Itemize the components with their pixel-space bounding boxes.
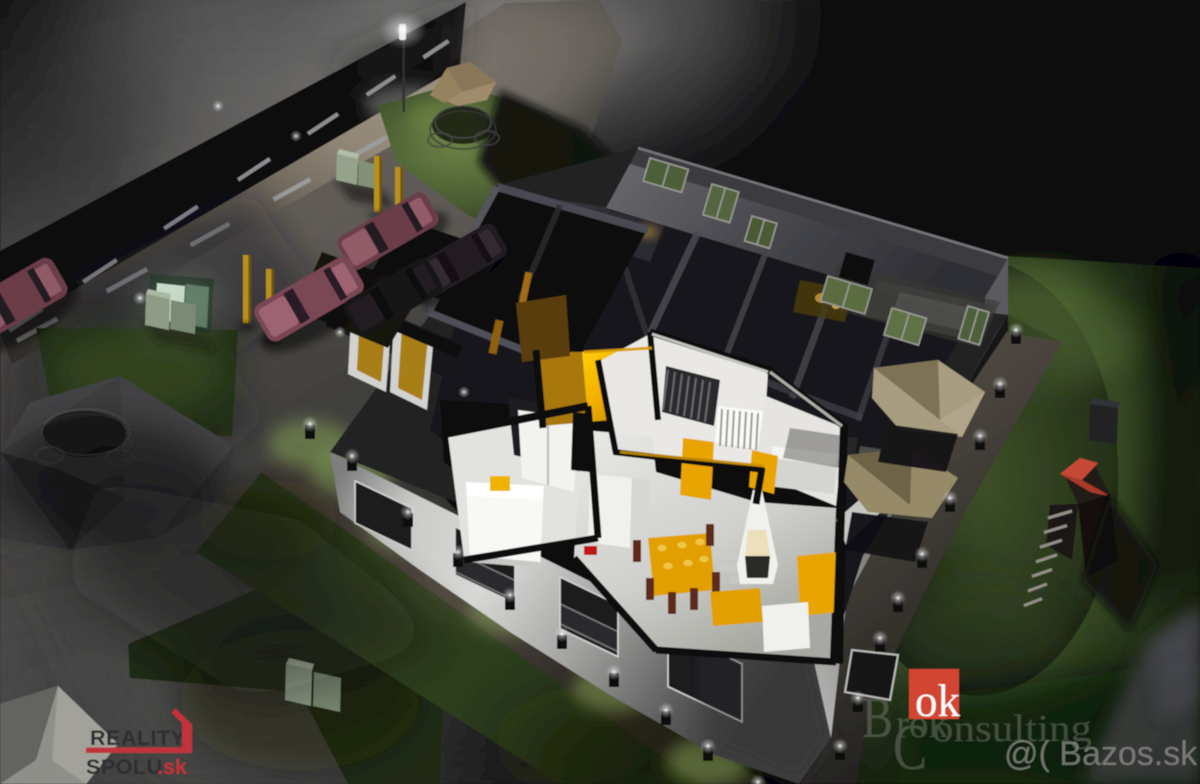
svg-text:B: B — [862, 685, 893, 750]
svg-text:SPOLU: SPOLU — [86, 755, 163, 779]
svg-text:REALITY: REALITY — [90, 726, 185, 750]
svg-text:.sk: .sk — [157, 755, 187, 779]
svg-text:ok: ok — [915, 676, 961, 726]
svg-text:@( Bazos.sk: @( Bazos.sk — [1004, 735, 1198, 773]
